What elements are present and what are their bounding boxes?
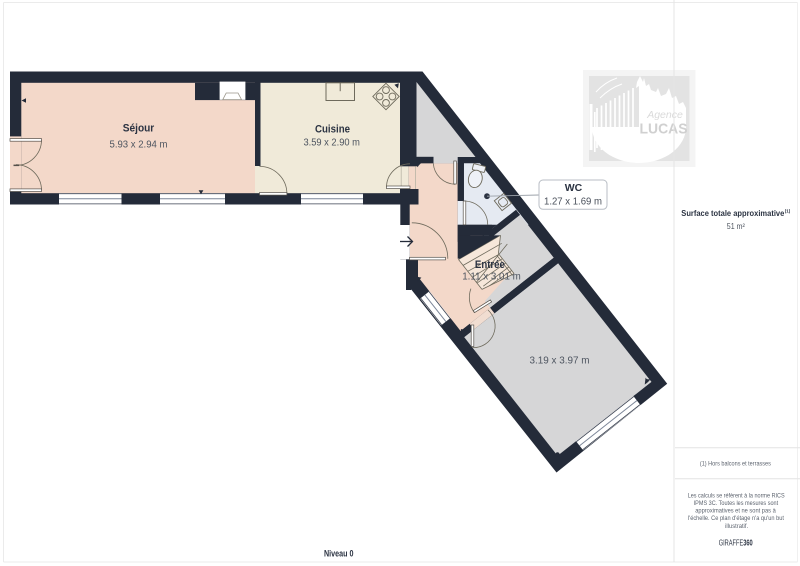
svg-text:WC: WC	[565, 182, 583, 194]
svg-text:Les calculs se réfèrent à la n: Les calculs se réfèrent à la norme RICS	[688, 493, 785, 500]
svg-text:l'échelle. Ce plan d'étage n'a: l'échelle. Ce plan d'étage n'a qu'un but	[688, 515, 784, 522]
svg-text:Cuisine: Cuisine	[315, 123, 350, 135]
svg-text:(1) Hors balcons et terrasses: (1) Hors balcons et terrasses	[700, 461, 771, 468]
svg-text:1.27 x 1.69 m: 1.27 x 1.69 m	[544, 197, 602, 208]
svg-text:Niveau 0: Niveau 0	[324, 548, 354, 558]
svg-text:LUCAS: LUCAS	[640, 121, 688, 138]
svg-text:IPMS 3C. Toutes les mesures so: IPMS 3C. Toutes les mesures sont	[694, 500, 779, 507]
svg-text:51 m²: 51 m²	[727, 222, 745, 231]
svg-text:Agence: Agence	[646, 109, 683, 121]
svg-text:3.19 x 3.97 m: 3.19 x 3.97 m	[530, 356, 590, 367]
svg-text:Surface totale approximative: Surface totale approximative	[681, 208, 784, 218]
svg-text:3.59 x 2.90 m: 3.59 x 2.90 m	[303, 138, 360, 149]
svg-text:illustratif.: illustratif.	[725, 523, 748, 530]
svg-text:Séjour: Séjour	[123, 123, 155, 135]
svg-text:(1): (1)	[785, 208, 791, 213]
svg-text:Entrée: Entrée	[475, 259, 505, 271]
svg-text:5.93 x 2.94 m: 5.93 x 2.94 m	[110, 139, 168, 150]
svg-text:GIRAFFE360: GIRAFFE360	[719, 538, 753, 547]
svg-text:1.11 x 3.01 m: 1.11 x 3.01 m	[462, 271, 521, 282]
svg-text:approximatives et ne sont pas: approximatives et ne sont pas à	[695, 508, 776, 515]
